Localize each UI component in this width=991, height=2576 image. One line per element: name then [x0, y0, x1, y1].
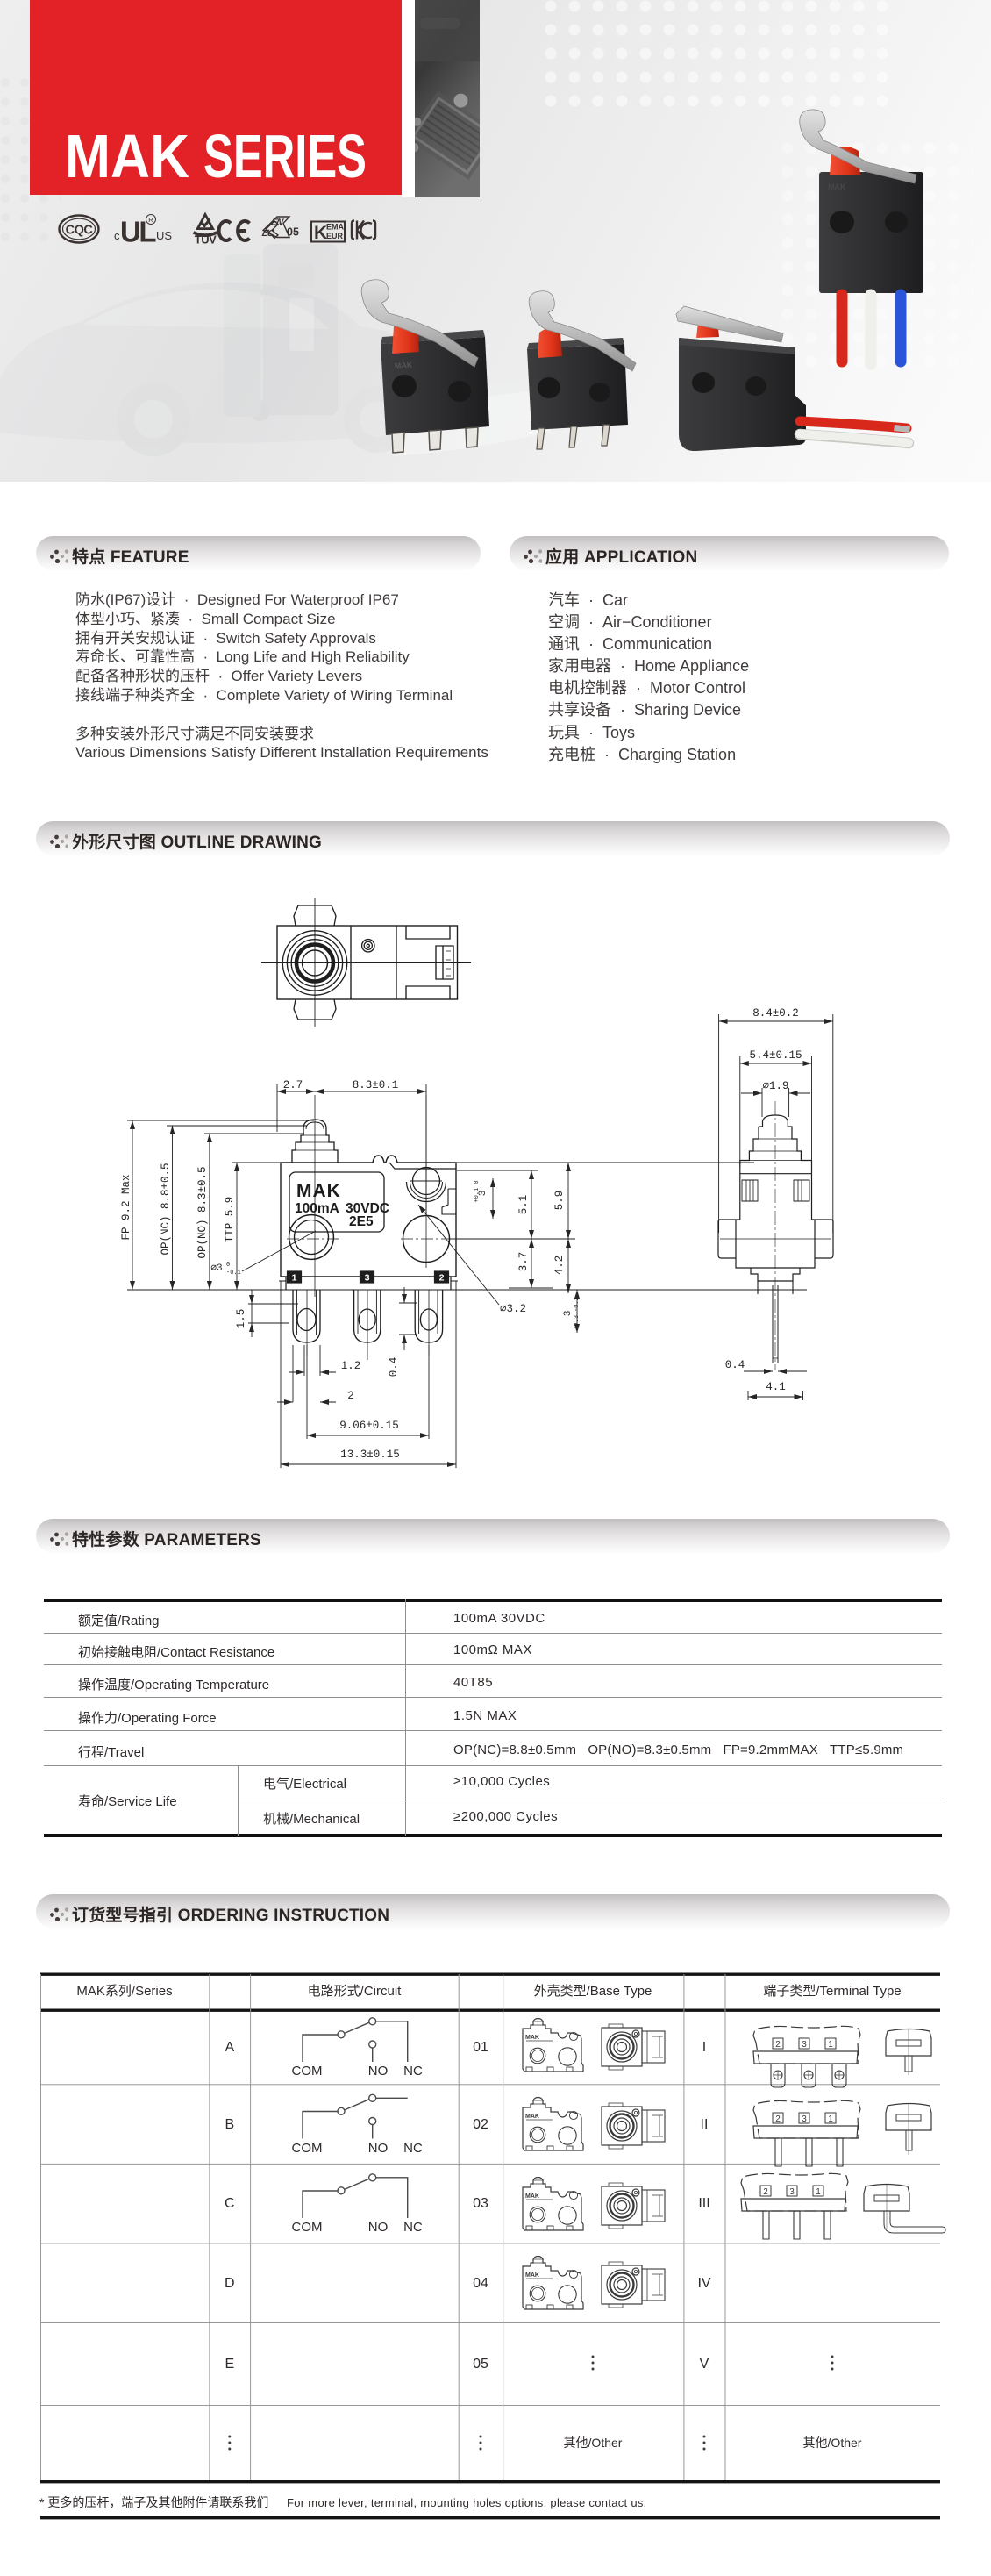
svg-text:2: 2	[763, 2187, 768, 2197]
svg-text:V: V	[700, 2357, 709, 2372]
svg-text:B: B	[225, 2117, 234, 2132]
svg-text:01: 01	[473, 2040, 488, 2055]
svg-text:For more lever, terminal, moun: For more lever, terminal, mounting holes…	[287, 2496, 647, 2509]
svg-text:03: 03	[473, 2196, 488, 2211]
svg-text:COM: COM	[292, 2141, 323, 2156]
svg-text:MAK系列/Series: MAK系列/Series	[76, 1984, 172, 1999]
svg-text:C: C	[225, 2196, 235, 2211]
svg-text:II: II	[701, 2117, 709, 2132]
svg-text:2: 2	[775, 2040, 781, 2050]
svg-text:2: 2	[775, 2114, 781, 2124]
svg-text:其他/Other: 其他/Other	[564, 2436, 623, 2450]
svg-text:E: E	[225, 2357, 234, 2372]
svg-text:3: 3	[802, 2114, 807, 2124]
svg-text:NO: NO	[368, 2220, 389, 2235]
svg-text:IV: IV	[697, 2276, 710, 2291]
svg-text:其他/Other: 其他/Other	[803, 2436, 862, 2450]
svg-text:外壳类型/Base Type: 外壳类型/Base Type	[534, 1984, 652, 1999]
svg-text:COM: COM	[292, 2220, 323, 2235]
svg-text:02: 02	[473, 2117, 488, 2132]
svg-text:1: 1	[828, 2040, 833, 2050]
svg-text:NC: NC	[403, 2064, 423, 2079]
svg-text:* 更多的压杆，端子及其他附件请联系我们: * 更多的压杆，端子及其他附件请联系我们	[39, 2495, 268, 2509]
svg-text:NO: NO	[368, 2064, 389, 2079]
svg-text:1: 1	[828, 2114, 833, 2124]
svg-text:COM: COM	[292, 2064, 323, 2079]
svg-text:A: A	[225, 2040, 234, 2055]
svg-text:3: 3	[802, 2040, 807, 2050]
svg-text:3: 3	[789, 2187, 795, 2197]
svg-text:电路形式/Circuit: 电路形式/Circuit	[308, 1984, 403, 1999]
svg-text:NO: NO	[368, 2141, 389, 2156]
svg-text:III: III	[698, 2196, 709, 2211]
svg-text:D: D	[225, 2276, 235, 2291]
svg-text:I: I	[702, 2040, 706, 2055]
svg-text:端子类型/Terminal Type: 端子类型/Terminal Type	[763, 1984, 901, 1999]
svg-text:1: 1	[816, 2187, 821, 2197]
svg-text:NC: NC	[403, 2220, 423, 2235]
svg-text:05: 05	[473, 2357, 488, 2372]
svg-text:04: 04	[473, 2276, 488, 2291]
svg-text:NC: NC	[403, 2141, 423, 2156]
